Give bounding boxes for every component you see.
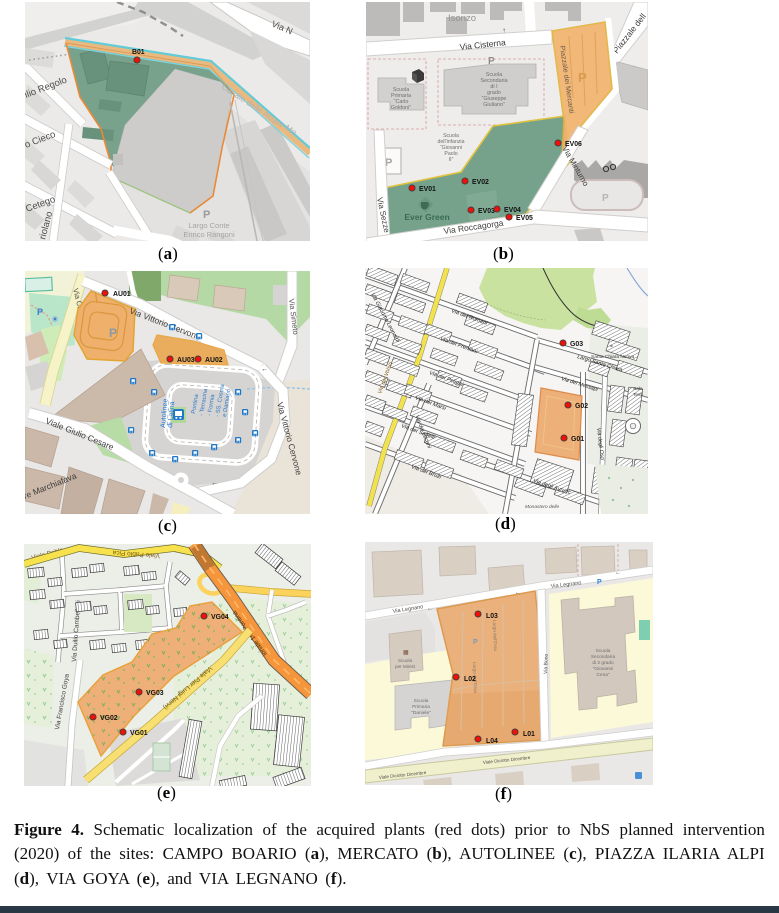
svg-text:VG02: VG02 — [100, 715, 118, 722]
svg-text:II”: II” — [449, 157, 454, 163]
svg-text:Goldoni”: Goldoni” — [391, 105, 412, 111]
svg-text:←: ← — [427, 606, 433, 612]
svg-text:“Giovanni: “Giovanni — [593, 666, 614, 672]
svg-text:per Minist: per Minist — [395, 664, 416, 669]
svg-text:G02: G02 — [575, 403, 588, 410]
svg-text:Scuola: Scuola — [398, 658, 412, 663]
svg-text:“Daniele”: “Daniele” — [411, 710, 431, 716]
svg-text:Isonzo: Isonzo — [448, 13, 476, 24]
svg-text:Scuola: Scuola — [596, 648, 611, 654]
svg-text:AU01: AU01 — [113, 291, 131, 298]
svg-text:L02: L02 — [464, 676, 476, 683]
svg-text:←: ← — [261, 366, 268, 373]
svg-text:di 2 grado: di 2 grado — [592, 660, 614, 666]
svg-text:VG04: VG04 — [211, 614, 229, 621]
svg-text:AU03: AU03 — [177, 357, 195, 364]
svg-text:Via Bono: Via Bono — [543, 653, 550, 674]
svg-text:Sala: Sala — [633, 386, 643, 392]
svg-text:Monastero delle: Monastero delle — [525, 504, 559, 510]
svg-text:EV01: EV01 — [419, 186, 436, 193]
svg-text:P: P — [602, 193, 609, 204]
svg-text:P: P — [597, 579, 602, 586]
svg-text:Enrico Rangoni: Enrico Rangoni — [183, 230, 235, 239]
svg-text:AU02: AU02 — [205, 357, 223, 364]
svg-text:Secondaria: Secondaria — [591, 654, 616, 660]
svg-text:Largo Conte: Largo Conte — [188, 221, 229, 230]
svg-text:EV06: EV06 — [565, 141, 582, 148]
svg-text:P: P — [578, 70, 587, 85]
svg-text:VG03: VG03 — [146, 690, 164, 697]
svg-text:P: P — [109, 326, 117, 340]
svg-text:EV03: EV03 — [478, 208, 495, 215]
svg-text:EV02: EV02 — [472, 179, 489, 186]
svg-text:Giuliano”: Giuliano” — [483, 102, 505, 108]
svg-text:B01: B01 — [132, 49, 145, 56]
svg-text:VG01: VG01 — [130, 730, 148, 737]
svg-text:▦: ▦ — [403, 650, 409, 656]
svg-text:←: ← — [211, 480, 218, 487]
svg-text:P: P — [473, 639, 478, 646]
svg-text:P: P — [203, 209, 210, 221]
svg-text:G01: G01 — [571, 436, 584, 443]
svg-text:P: P — [37, 307, 43, 317]
svg-text:Cena”: Cena” — [596, 672, 609, 678]
svg-text:Ever Green: Ever Green — [404, 212, 449, 222]
svg-text:←: ← — [615, 570, 621, 576]
svg-text:G03: G03 — [570, 341, 583, 348]
svg-text:L04: L04 — [486, 738, 498, 745]
svg-text:⚬: ⚬ — [609, 344, 614, 350]
svg-text:Scuola: Scuola — [414, 698, 429, 704]
svg-text:Testi: Testi — [633, 392, 643, 398]
svg-text:L01: L01 — [523, 731, 535, 738]
svg-text:EV05: EV05 — [516, 215, 533, 222]
svg-text:L03: L03 — [486, 613, 498, 620]
svg-text:EV04: EV04 — [504, 207, 521, 214]
svg-text:Santa Chiara Nuova: Santa Chiara Nuova — [591, 354, 635, 360]
svg-text:Primaria: Primaria — [412, 704, 430, 710]
